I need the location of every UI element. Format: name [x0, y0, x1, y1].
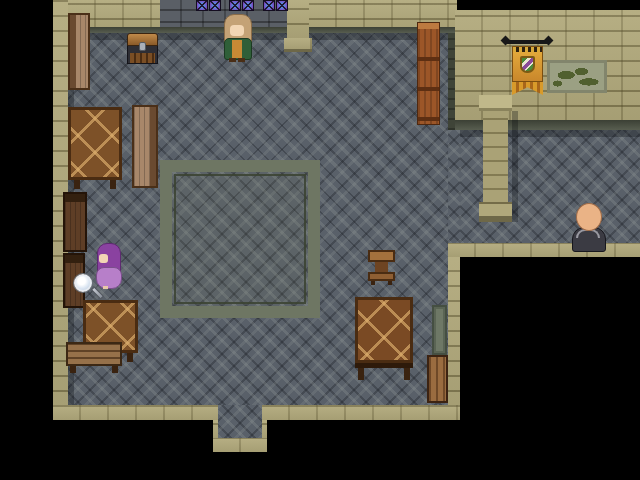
shelf-divider [418, 87, 439, 91]
cabinet-top [65, 255, 83, 263]
stained-glass-window [276, 0, 288, 11]
monk-npc[interactable] [570, 203, 606, 250]
corridor-floor-join [448, 130, 460, 243]
doorway-right-jamb [262, 420, 267, 438]
chest-slats [130, 53, 155, 63]
chair-backrest [150, 107, 156, 186]
east-wall-shelf [417, 22, 440, 125]
elder-foot [229, 58, 236, 62]
bench [66, 342, 122, 366]
banner-rod [505, 40, 549, 44]
pillar-shadow [512, 111, 518, 222]
top-pillar-base [284, 38, 312, 52]
bench-legs [66, 366, 122, 373]
purple-girl-foot [103, 286, 108, 289]
banner-top-band [513, 47, 542, 52]
doorway-left-jamb [213, 420, 218, 438]
table-upper-left-legs [68, 180, 122, 189]
wall-banner [512, 46, 543, 82]
shelf-cap [418, 23, 439, 29]
top-wall-shadow [68, 33, 448, 40]
monk-head [576, 203, 602, 231]
magnifier-lens [74, 274, 92, 292]
banner-shield-emblem [520, 56, 535, 73]
game-viewport [0, 0, 640, 480]
stained-glass-window [209, 0, 221, 11]
east-lower-wall [448, 257, 460, 405]
chest-clasp [139, 42, 146, 51]
pillar-shaft [483, 111, 508, 202]
elder-foot [238, 58, 245, 62]
stained-glass-window [242, 0, 254, 11]
table-bottom-center-legs [355, 368, 413, 380]
chair-top-left [68, 13, 90, 90]
pillar-capital [479, 95, 512, 111]
corridor-bottom-wall [448, 243, 640, 257]
magnifier-cursor[interactable] [74, 274, 100, 302]
elder-face [230, 25, 244, 36]
doorway-bottom-wall [213, 438, 267, 452]
top-pillar [287, 0, 309, 38]
wall-map [547, 60, 607, 93]
doorway-floor [218, 405, 262, 438]
shelf-divider [418, 117, 439, 121]
table-upper-left [68, 107, 122, 180]
stained-glass-window [263, 0, 275, 11]
floor-inlay [160, 160, 320, 318]
stained-glass-window [229, 0, 241, 11]
cabinet-left-upper [63, 192, 87, 252]
stained-glass-window [196, 0, 208, 11]
leaning-board [432, 305, 447, 355]
purple-girl-face [99, 254, 108, 263]
crate [427, 355, 448, 403]
bottom-wall-right [262, 405, 460, 420]
bottom-wall-left [53, 405, 218, 420]
pillar-base [479, 202, 512, 222]
chair-facing-table [132, 105, 158, 188]
side-table-stool [368, 250, 395, 285]
shelf-divider [418, 57, 439, 61]
cabinet-top [65, 194, 85, 202]
treasure-chest[interactable] [127, 33, 158, 64]
elder-npc[interactable] [222, 12, 252, 62]
chair-backrest [70, 15, 76, 88]
elder-robe [232, 40, 242, 58]
table-bottom-center [355, 297, 413, 363]
